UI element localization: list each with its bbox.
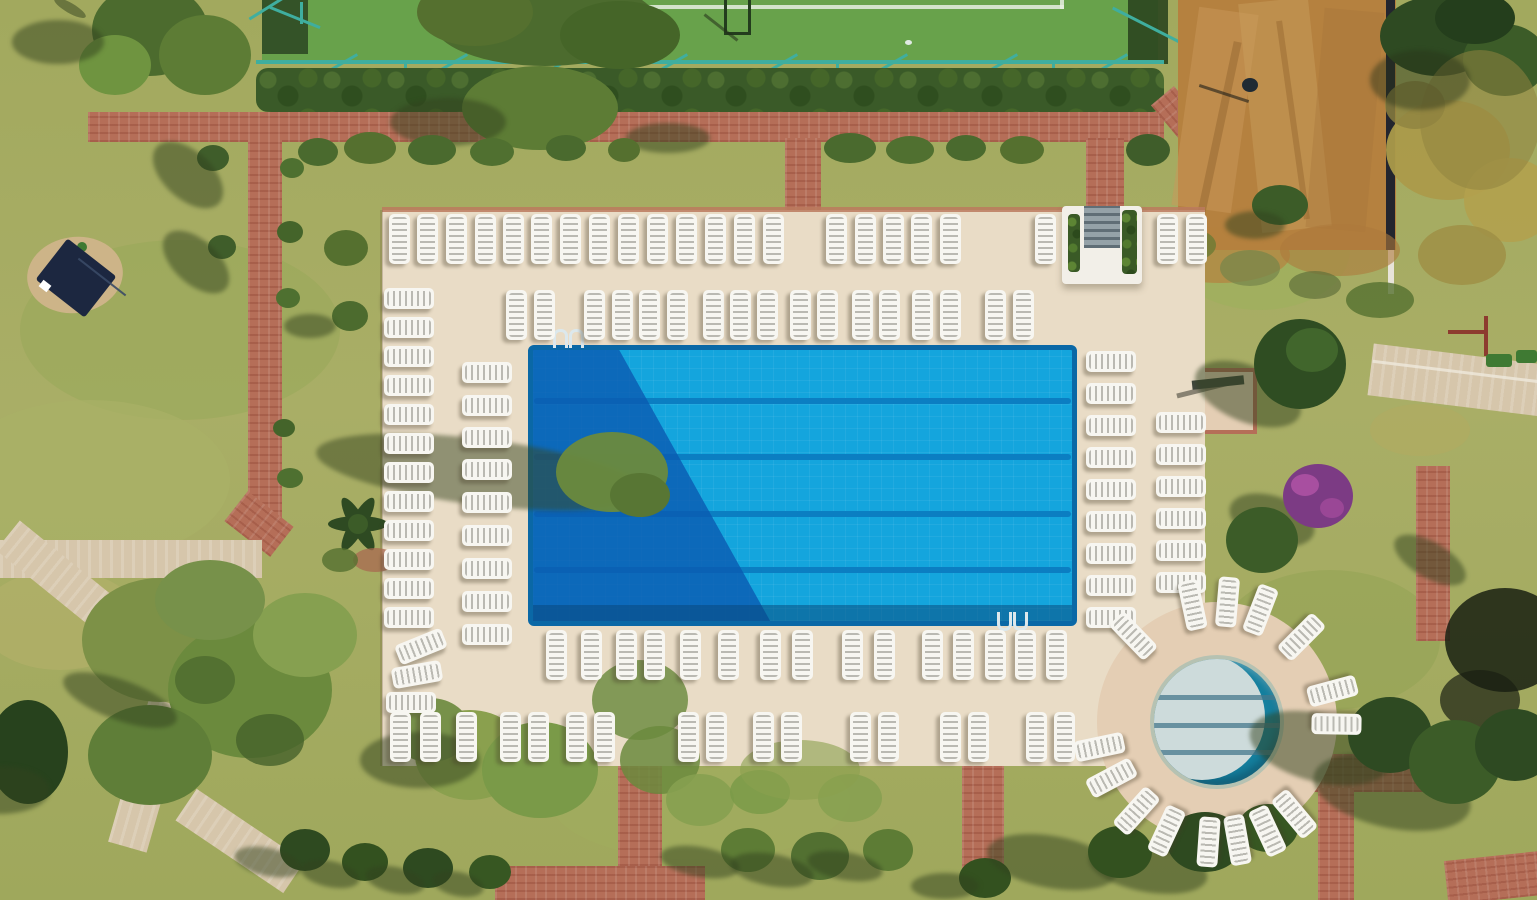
- sun-lounger: [446, 214, 467, 264]
- sun-lounger: [826, 214, 847, 264]
- sun-lounger: [389, 214, 410, 264]
- palm-center: [348, 514, 368, 534]
- sun-lounger: [616, 630, 637, 680]
- pergola-planter: [1068, 214, 1080, 272]
- sun-lounger: [462, 624, 512, 645]
- dirt-fade: [1280, 224, 1400, 276]
- sun-lounger: [1086, 447, 1136, 468]
- bush: [1088, 826, 1152, 878]
- sun-lounger: [705, 214, 726, 264]
- red-rail: [1484, 316, 1488, 356]
- bush: [408, 135, 456, 165]
- sun-lounger: [953, 630, 974, 680]
- sun-lounger: [384, 433, 434, 454]
- sun-lounger: [940, 712, 961, 762]
- pole-shadow: [52, 0, 88, 21]
- pergola-planter: [1122, 210, 1137, 274]
- deck-edge-shadow: [380, 210, 383, 766]
- sun-lounger: [566, 712, 587, 762]
- sun-lounger: [384, 607, 434, 628]
- sun-lounger: [757, 290, 778, 340]
- sun-lounger: [462, 525, 512, 546]
- sun-lounger: [386, 692, 436, 713]
- sun-lounger: [1086, 479, 1136, 500]
- notch-border: [1205, 430, 1257, 434]
- sun-lounger: [1157, 214, 1178, 264]
- sun-lounger: [985, 290, 1006, 340]
- sun-lounger: [730, 290, 751, 340]
- sun-lounger: [589, 214, 610, 264]
- sun-lounger: [1046, 630, 1067, 680]
- sun-lounger: [1156, 444, 1206, 465]
- court-line: [1060, 0, 1064, 9]
- bush: [946, 135, 986, 161]
- sun-lounger: [781, 712, 802, 762]
- olive-dark: [236, 714, 304, 766]
- sun-lounger: [384, 491, 434, 512]
- tree-shadow: [1370, 50, 1470, 110]
- sun-lounger: [1035, 214, 1056, 264]
- olive-tree: [155, 560, 265, 640]
- grass-patch: [1370, 404, 1470, 456]
- tree-shadow: [284, 314, 336, 338]
- pool-ladder: [553, 329, 568, 348]
- sun-lounger: [922, 630, 943, 680]
- sun-lounger: [850, 712, 871, 762]
- tennis-court: [262, 0, 1158, 62]
- sprinkler: [905, 40, 912, 45]
- goal-post: [748, 0, 751, 34]
- tree: [332, 301, 368, 331]
- bush: [273, 419, 295, 437]
- pool-ladder: [997, 612, 1012, 631]
- bush: [824, 133, 876, 163]
- sun-lounger: [940, 214, 961, 264]
- sun-lounger: [462, 427, 512, 448]
- kids-pool-shallow: [1154, 659, 1265, 780]
- sun-lounger: [384, 549, 434, 570]
- sun-lounger: [581, 630, 602, 680]
- sun-lounger: [462, 558, 512, 579]
- sun-lounger: [760, 630, 781, 680]
- sun-lounger: [420, 712, 441, 762]
- bush: [344, 132, 396, 164]
- bush: [1226, 507, 1298, 573]
- sun-lounger: [879, 290, 900, 340]
- pool-ladder: [1013, 612, 1028, 631]
- sun-lounger: [612, 290, 633, 340]
- sun-lounger: [417, 214, 438, 264]
- path-bottom-horiz: [495, 866, 705, 900]
- sun-lounger: [456, 712, 477, 762]
- sun-lounger: [1156, 540, 1206, 561]
- sun-lounger: [1086, 543, 1136, 564]
- umbrella-top: [1242, 78, 1258, 92]
- tree: [610, 473, 670, 517]
- scrub: [1220, 250, 1280, 286]
- sun-lounger: [1015, 630, 1036, 680]
- sun-lounger: [1186, 214, 1207, 264]
- sun-lounger: [384, 317, 434, 338]
- sun-lounger: [384, 404, 434, 425]
- sun-lounger: [506, 290, 527, 340]
- sun-lounger: [384, 578, 434, 599]
- sun-lounger: [676, 214, 697, 264]
- sun-lounger: [503, 214, 524, 264]
- bush: [1000, 136, 1044, 164]
- sun-lounger: [1156, 412, 1206, 433]
- sun-lounger: [667, 290, 688, 340]
- sun-lounger: [703, 290, 724, 340]
- path-to-structure: [1086, 138, 1124, 212]
- sun-lounger: [968, 712, 989, 762]
- sun-lounger: [678, 712, 699, 762]
- sun-lounger: [384, 520, 434, 541]
- sun-lounger: [1013, 290, 1034, 340]
- sun-lounger: [1086, 415, 1136, 436]
- tree: [159, 15, 251, 95]
- sun-lounger: [842, 630, 863, 680]
- sun-lounger: [817, 290, 838, 340]
- kids-pool-step-stripe: [1154, 695, 1280, 700]
- sun-lounger: [546, 630, 567, 680]
- grass-tuft: [322, 548, 358, 572]
- sun-lounger: [594, 712, 615, 762]
- sun-lounger: [753, 712, 774, 762]
- sun-lounger: [680, 630, 701, 680]
- sun-lounger: [1196, 816, 1220, 867]
- pool-bottom-shade: [533, 605, 1072, 621]
- bush: [276, 288, 300, 308]
- path-bottom-right: [1444, 851, 1537, 900]
- big-bush-light: [1286, 328, 1338, 372]
- sun-lounger: [878, 712, 899, 762]
- hedge-row: [256, 68, 1164, 112]
- sun-lounger: [1086, 511, 1136, 532]
- sun-lounger: [706, 712, 727, 762]
- sun-lounger: [1086, 575, 1136, 596]
- sun-lounger: [534, 290, 555, 340]
- tree: [560, 1, 680, 69]
- sun-lounger: [462, 459, 512, 480]
- bush-shadow: [1225, 211, 1285, 239]
- bougainvillea: [1283, 464, 1353, 528]
- tree: [324, 230, 368, 266]
- bush: [277, 221, 303, 243]
- bush: [470, 138, 514, 166]
- bougainvillea-bloom: [1320, 498, 1344, 518]
- pool-ladder: [569, 329, 584, 348]
- fence-rail: [256, 60, 1164, 64]
- sun-lounger: [792, 630, 813, 680]
- sun-lounger: [560, 214, 581, 264]
- sun-lounger: [1215, 577, 1240, 629]
- aerial-resort-photo: [0, 0, 1537, 900]
- sun-lounger: [384, 288, 434, 309]
- bush: [277, 468, 303, 488]
- bush-shadow: [911, 873, 979, 899]
- sun-lounger: [618, 214, 639, 264]
- bougainvillea-bloom: [1291, 474, 1319, 496]
- sun-lounger: [718, 630, 739, 680]
- sun-lounger: [462, 395, 512, 416]
- red-rail: [1448, 330, 1488, 334]
- sun-lounger: [475, 214, 496, 264]
- path-to-deck: [785, 138, 821, 214]
- sun-lounger: [1054, 712, 1075, 762]
- scrub: [1289, 271, 1341, 299]
- sun-lounger: [911, 214, 932, 264]
- green-mat: [1516, 350, 1537, 363]
- bush: [1126, 134, 1170, 166]
- sun-lounger: [1156, 476, 1206, 497]
- green-mat: [1486, 354, 1512, 367]
- sun-lounger: [390, 712, 411, 762]
- sun-lounger: [462, 492, 512, 513]
- sun-lounger: [384, 375, 434, 396]
- sun-lounger: [1026, 712, 1047, 762]
- sun-lounger: [1086, 383, 1136, 404]
- sun-lounger: [883, 214, 904, 264]
- sun-lounger: [639, 290, 660, 340]
- bush: [886, 136, 934, 164]
- sun-lounger: [1086, 351, 1136, 372]
- pergola-stairwell: [1084, 206, 1120, 248]
- sun-lounger: [647, 214, 668, 264]
- sun-lounger: [763, 214, 784, 264]
- tree: [666, 774, 734, 826]
- bush: [608, 138, 640, 162]
- sun-lounger: [384, 462, 434, 483]
- sun-lounger: [940, 290, 961, 340]
- dry-brush: [1418, 225, 1506, 285]
- tree-shadow: [12, 20, 104, 64]
- sun-lounger: [462, 362, 512, 383]
- sun-lounger: [1312, 713, 1362, 735]
- bush: [298, 138, 338, 166]
- scrub: [1346, 282, 1414, 318]
- bush: [546, 135, 586, 161]
- cypress-shadow: [141, 129, 236, 221]
- sun-lounger: [874, 630, 895, 680]
- olive-dark: [175, 656, 235, 704]
- sun-lounger: [528, 712, 549, 762]
- sun-lounger: [462, 591, 512, 612]
- sun-lounger: [985, 630, 1006, 680]
- sun-lounger: [790, 290, 811, 340]
- fence-post: [300, 2, 303, 24]
- sun-lounger: [644, 630, 665, 680]
- bush: [280, 158, 304, 178]
- sun-lounger: [384, 346, 434, 367]
- olive-tree: [253, 593, 357, 677]
- sun-lounger: [734, 214, 755, 264]
- sun-lounger: [584, 290, 605, 340]
- sun-lounger: [855, 214, 876, 264]
- sun-lounger: [852, 290, 873, 340]
- sun-lounger: [912, 290, 933, 340]
- sun-lounger: [531, 214, 552, 264]
- sun-lounger: [500, 712, 521, 762]
- sun-lounger: [1156, 508, 1206, 529]
